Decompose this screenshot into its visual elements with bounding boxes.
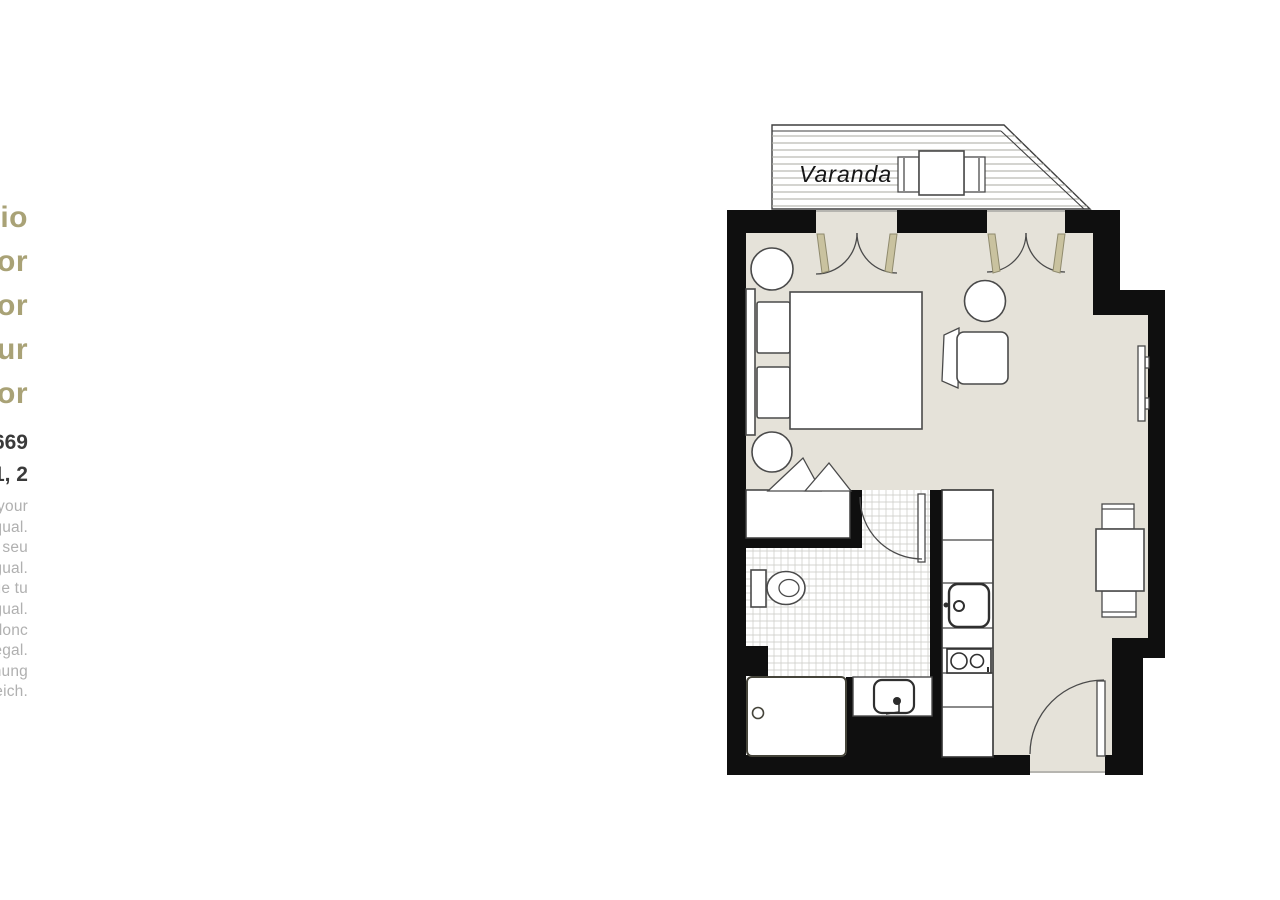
nightstand-top <box>751 248 793 290</box>
dining-chair-bottom <box>1102 591 1136 617</box>
nightstand-bottom <box>752 432 792 472</box>
entry-door-leaf <box>1097 681 1105 756</box>
floorplan-page: Superior Studio Estúdio Superior Estudio… <box>0 0 1280 900</box>
closet-bottom-wall <box>746 538 862 548</box>
top-wall-mid <box>897 210 987 233</box>
kitchen <box>942 490 993 757</box>
armchair-seat <box>957 332 1008 384</box>
bed-headboard <box>746 289 755 435</box>
closet <box>746 490 850 538</box>
top-wall-right <box>1065 210 1120 233</box>
dining-table <box>1096 529 1144 591</box>
floorplan-drawing: Varanda <box>0 0 1280 900</box>
kitchen-faucet-base <box>944 603 949 608</box>
dining-chair-top <box>1102 504 1134 529</box>
balcony: Varanda <box>772 125 1090 209</box>
balcony-chair-right <box>964 157 985 192</box>
balcony-door-opening-left <box>816 210 897 233</box>
below-vanity-fill <box>853 715 932 757</box>
bathroom-door-leaf <box>918 494 925 562</box>
right-wall-step1-horizontal <box>1093 290 1165 315</box>
side-table <box>965 281 1006 322</box>
toilet-tank <box>751 570 766 607</box>
pillow-bottom <box>757 367 790 418</box>
shower-vanity-divider <box>846 677 853 757</box>
bed <box>790 292 922 429</box>
balcony-label: Varanda <box>799 161 892 187</box>
washbasin <box>874 680 914 713</box>
balcony-chair-left <box>898 157 919 192</box>
right-wall-step1-vertical <box>1093 233 1120 292</box>
burner-left <box>951 653 967 669</box>
left-wall <box>727 210 746 775</box>
bottom-wall-right <box>1105 755 1143 775</box>
pillow-top <box>757 302 790 353</box>
balcony-table <box>919 151 964 195</box>
right-wall-step2 <box>1112 638 1165 658</box>
basin-faucet <box>893 697 901 705</box>
tv <box>1138 346 1145 421</box>
kitchen-faucet <box>954 601 964 611</box>
left-wall-bump <box>746 646 768 676</box>
burner-right <box>971 655 984 668</box>
entry-opening-floor <box>1030 755 1105 773</box>
bottom-wall-left <box>727 755 1030 775</box>
right-wall-upper <box>1148 315 1165 658</box>
balcony-door-opening-right <box>987 210 1065 233</box>
